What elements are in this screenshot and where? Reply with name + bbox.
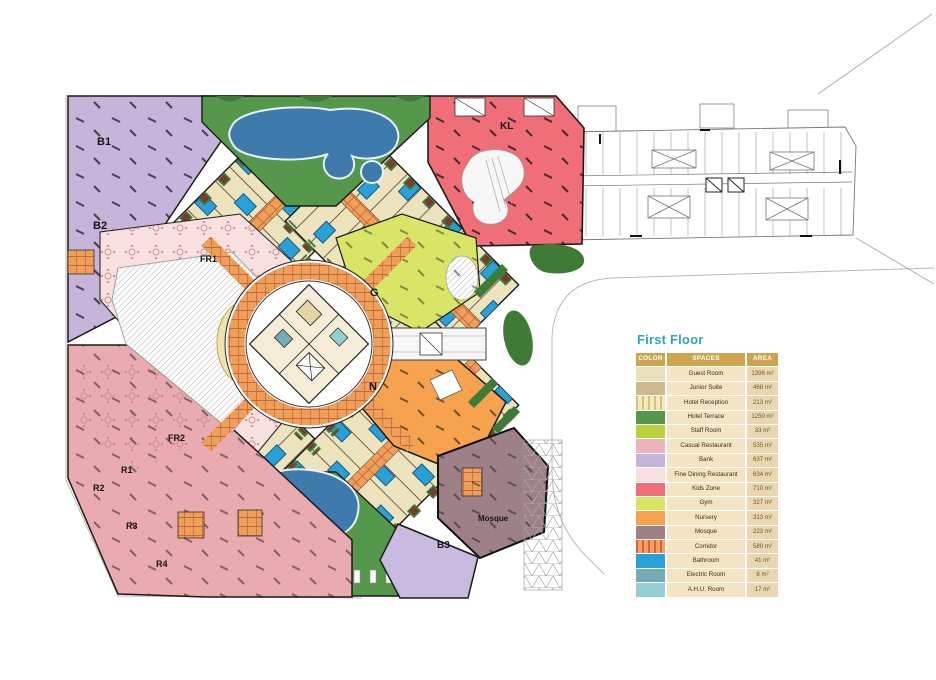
plan-label-r1: R1 <box>121 465 133 475</box>
legend-area-value: 33 m² <box>747 425 778 438</box>
legend-color-swatch <box>636 468 665 481</box>
legend-row: A.H.U. Room17 m² <box>636 583 779 596</box>
outline-apartment-wing <box>552 104 856 240</box>
plan-label-r4: R4 <box>156 559 168 569</box>
legend-color-swatch <box>636 554 665 567</box>
plan-label-kl: KL <box>500 121 513 132</box>
legend-row: Hotel Reception213 m² <box>636 396 779 409</box>
legend-space-label: Nursery <box>667 511 745 524</box>
legend-row: Bank637 m² <box>636 454 779 467</box>
legend-color-swatch <box>636 569 665 582</box>
legend-color-swatch <box>636 483 665 496</box>
legend-row: Mosque223 m² <box>636 526 779 539</box>
legend-area-value: 313 m² <box>747 511 778 524</box>
legend-space-label: Fine Dining Restaurant <box>667 468 745 481</box>
plan-label-fr1: FR1 <box>200 254 217 264</box>
legend-color-swatch <box>636 454 665 467</box>
legend-area-value: 637 m² <box>747 454 778 467</box>
legend-area-value: 710 m² <box>747 483 778 496</box>
legend-space-label: Corridor <box>667 540 745 553</box>
plan-label-fr2: FR2 <box>168 433 185 443</box>
legend-header-color: COLOR <box>636 353 665 366</box>
legend-area-value: 535 m² <box>747 439 778 452</box>
legend-area-value: 213 m² <box>747 396 778 409</box>
legend-title: First Floor <box>637 332 779 347</box>
legend-space-label: Bank <box>667 454 745 467</box>
legend-row: Staff Room33 m² <box>636 425 779 438</box>
legend-row: Bathroom41 m² <box>636 554 779 567</box>
legend-row: Casual Restaurant535 m² <box>636 439 779 452</box>
legend-color-swatch <box>636 367 665 380</box>
legend-space-label: Electric Room <box>667 569 745 582</box>
legend-header-row: COLOR SPACES AREA <box>636 353 779 366</box>
legend-space-label: Hotel Terrace <box>667 411 745 424</box>
legend-area-value: 8 m² <box>747 569 778 582</box>
plan-label-b3: B3 <box>437 540 450 551</box>
legend-space-label: Kids Zone <box>667 483 745 496</box>
legend-area-value: 580 m² <box>747 540 778 553</box>
legend-panel: First Floor COLOR SPACES AREA Guest Room… <box>636 332 779 597</box>
legend-area-value: 1250 m² <box>747 411 778 424</box>
legend-color-swatch <box>636 382 665 395</box>
legend-color-swatch <box>636 411 665 424</box>
plan-label-r2: R2 <box>93 483 105 493</box>
plan-label-g: G <box>370 287 379 299</box>
legend-row: Corridor580 m² <box>636 540 779 553</box>
legend-color-swatch <box>636 540 665 553</box>
legend-color-swatch <box>636 583 665 596</box>
legend-row: Kids Zone710 m² <box>636 483 779 496</box>
legend-color-swatch <box>636 425 665 438</box>
legend-space-label: Hotel Reception <box>667 396 745 409</box>
plan-label-mosque: Mosque <box>478 514 509 523</box>
legend-space-label: Gym <box>667 497 745 510</box>
plan-label-b1: B1 <box>97 136 111 148</box>
floor-plan-drawing: B1B2FR1FR2R1R2R3R4KLGNMosqueB3 <box>0 0 936 680</box>
legend-area-value: 41 m² <box>747 554 778 567</box>
floor-plan-page: B1B2FR1FR2R1R2R3R4KLGNMosqueB3 First Flo… <box>0 0 936 680</box>
legend-row: Electric Room8 m² <box>636 569 779 582</box>
legend-area-value: 1396 m² <box>747 367 778 380</box>
legend-space-label: Bathroom <box>667 554 745 567</box>
legend-row: Hotel Terrace1250 m² <box>636 411 779 424</box>
legend-space-label: Casual Restaurant <box>667 439 745 452</box>
legend-color-swatch <box>636 497 665 510</box>
plan-label-n: N <box>369 381 377 393</box>
legend-space-label: Staff Room <box>667 425 745 438</box>
legend-space-label: A.H.U. Room <box>667 583 745 596</box>
legend-area-value: 634 m² <box>747 468 778 481</box>
skylight-grid <box>524 440 562 590</box>
legend-row: Junior Suite468 m² <box>636 382 779 395</box>
legend-area-value: 327 m² <box>747 497 778 510</box>
legend-rows: Guest Room1396 m²Junior Suite468 m²Hotel… <box>636 367 779 596</box>
legend-space-label: Guest Room <box>667 367 745 380</box>
legend-color-swatch <box>636 396 665 409</box>
plan-label-r3: R3 <box>126 521 138 531</box>
legend-row: Guest Room1396 m² <box>636 367 779 380</box>
plan-label-b2: B2 <box>93 220 107 232</box>
legend-space-label: Mosque <box>667 526 745 539</box>
legend-row: Nursery313 m² <box>636 511 779 524</box>
legend-area-value: 17 m² <box>747 583 778 596</box>
legend-area-value: 223 m² <box>747 526 778 539</box>
legend-color-swatch <box>636 511 665 524</box>
legend-table: COLOR SPACES AREA Guest Room1396 m²Junio… <box>636 353 779 597</box>
legend-space-label: Junior Suite <box>667 382 745 395</box>
legend-header-spaces: SPACES <box>667 353 745 366</box>
legend-row: Gym327 m² <box>636 497 779 510</box>
legend-header-area: AREA <box>747 353 778 366</box>
legend-color-swatch <box>636 526 665 539</box>
legend-color-swatch <box>636 439 665 452</box>
legend-area-value: 468 m² <box>747 382 778 395</box>
legend-row: Fine Dining Restaurant634 m² <box>636 468 779 481</box>
